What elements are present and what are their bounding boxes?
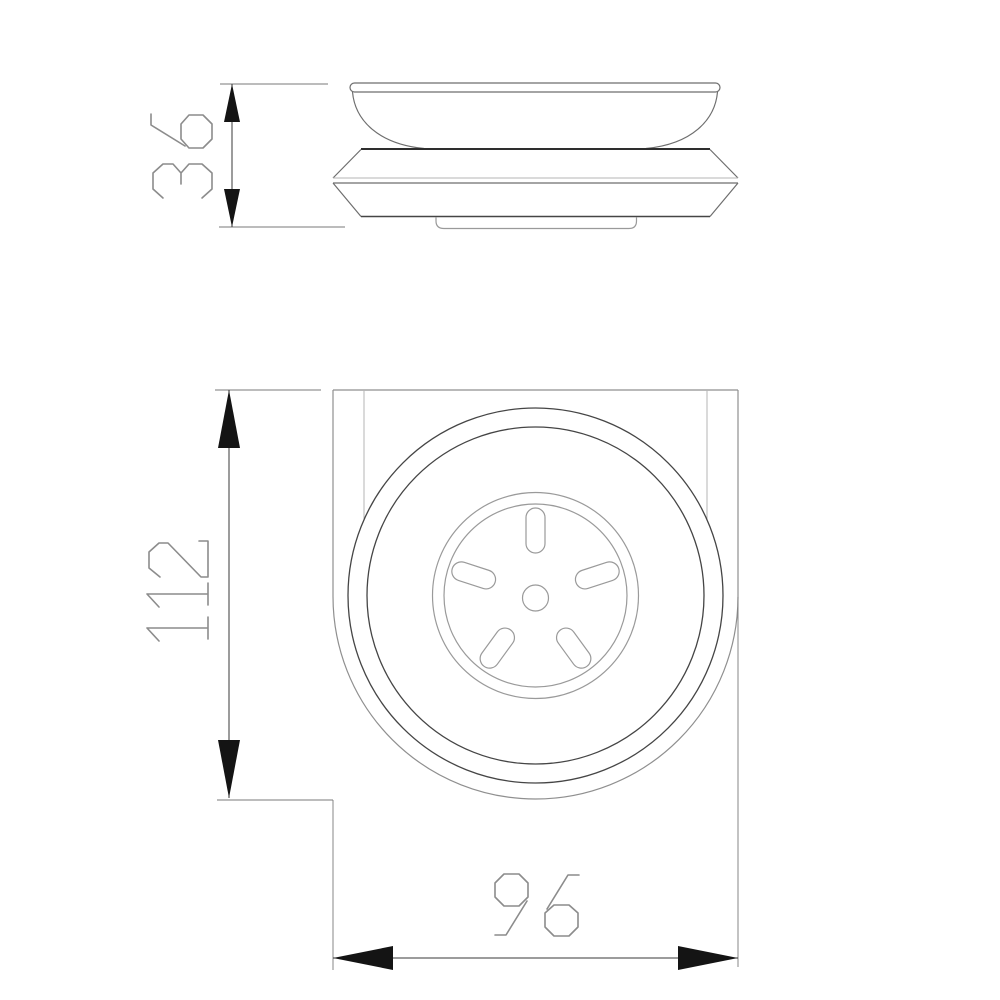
dish-rim-outline: [350, 83, 720, 92]
center-hole: [523, 585, 549, 611]
dimension-side-height: [151, 84, 345, 227]
arrowhead-right: [678, 946, 738, 970]
soap-dish-holder-drawing: [0, 0, 1000, 1000]
dimension-text-96: [495, 874, 579, 936]
arrowhead-up: [218, 390, 240, 448]
front-view: [333, 390, 738, 799]
ring-inner-circle: [367, 427, 704, 764]
drain-slot-upper-right: [573, 559, 622, 591]
backplate-bottom-arc: [333, 597, 738, 800]
drain-slots: [449, 508, 621, 672]
arrowhead-left: [333, 946, 393, 970]
dish-bowl-left-curve: [353, 92, 425, 149]
dish-bowl-right-curve: [646, 92, 718, 149]
side-view: [333, 83, 738, 229]
dimension-front-height: [147, 390, 333, 800]
ring-outer-circle: [348, 408, 723, 783]
arrowhead-down: [224, 189, 240, 227]
drain-slot-lower-left: [476, 624, 518, 672]
dish-outer-circle: [433, 493, 639, 699]
dish-inner-circle: [444, 504, 627, 687]
dimension-text-36: [151, 114, 212, 198]
dimension-text-112: [147, 541, 208, 641]
technical-drawing-canvas: [0, 0, 1000, 1000]
bracket-bottom-tab: [436, 217, 637, 229]
arrowhead-up: [224, 84, 240, 122]
drain-slot-lower-right: [553, 624, 595, 672]
arrowhead-down: [218, 740, 240, 798]
drain-slot-top: [526, 508, 545, 553]
drain-slot-upper-left: [449, 559, 498, 591]
